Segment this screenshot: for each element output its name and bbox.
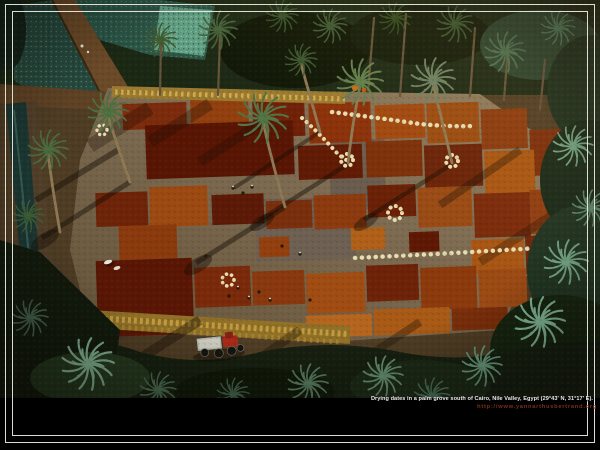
aerial-photo (0, 0, 600, 398)
photo-grain (0, 0, 600, 398)
photo-caption: Drying dates in a palm grove south of Ca… (371, 396, 593, 402)
wallpaper: Drying dates in a palm grove south of Ca… (0, 0, 600, 450)
photo-credit-url: http://www.yannarthusbertrand.org (477, 404, 597, 410)
